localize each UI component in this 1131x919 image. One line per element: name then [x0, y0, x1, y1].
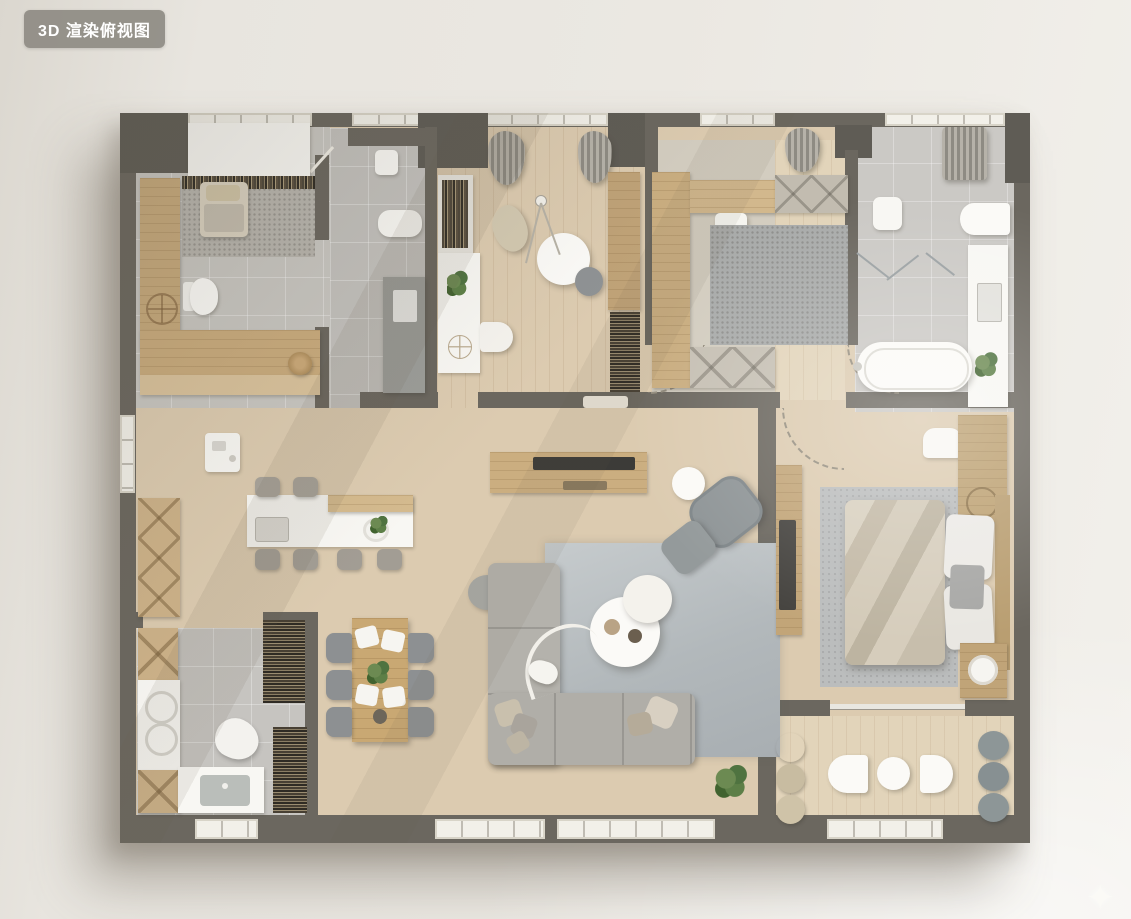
coffee-table-small	[623, 575, 672, 623]
nightstand-tray	[968, 655, 998, 685]
entry-cabinet-door	[393, 290, 417, 322]
bar-stool-5	[337, 549, 362, 570]
white-wardrobe	[188, 123, 310, 178]
bathtub-faucet	[853, 362, 862, 371]
wall-block-topleft	[120, 113, 188, 173]
dining-chair-l1	[326, 633, 352, 663]
place-setting-2	[380, 629, 406, 653]
entry-shoe-bench	[378, 210, 422, 237]
tv-console-groove	[563, 481, 607, 490]
place-setting-4	[382, 686, 407, 709]
dining-chair-r2	[408, 670, 434, 700]
living-plant	[715, 765, 751, 799]
island-sink	[255, 517, 289, 542]
entry-storage-cabinet	[383, 277, 425, 393]
place-setting-3	[354, 683, 379, 707]
laundry-basin-1	[145, 691, 178, 724]
office-rug	[710, 225, 848, 345]
laundry-exterior-door	[195, 819, 258, 839]
room1-compass-motif	[146, 293, 178, 325]
bed-duvet	[845, 500, 945, 665]
dining-chair-r3	[408, 707, 434, 737]
laundry-faucet	[222, 783, 228, 789]
study-cabinet-books	[610, 312, 640, 392]
dining-bottle	[373, 709, 387, 724]
bar-stool-3	[255, 549, 280, 570]
study-shelf-books	[442, 180, 468, 248]
toilet-bowl	[190, 278, 218, 315]
balcony-pouf-beige-2	[776, 764, 805, 793]
office-side-panel	[652, 172, 690, 388]
study-desk-decal	[448, 335, 472, 359]
window-bottom-living1	[435, 819, 545, 839]
bathroom-vanity	[968, 245, 1008, 407]
laundry-sink	[200, 775, 250, 806]
entry-door-mat	[375, 150, 398, 175]
coffee-table-bowl-1	[604, 619, 620, 635]
bedroom-basin	[923, 428, 962, 458]
bar-stool-4	[293, 549, 318, 570]
island-herbs	[370, 516, 390, 534]
bar-stool-6	[377, 549, 402, 570]
laundry-bookcase	[273, 727, 307, 813]
wall-bedroom-balcony-right	[965, 700, 1014, 716]
bathtub-inner	[864, 348, 969, 390]
study-side-chair	[575, 267, 603, 296]
tv	[533, 457, 635, 470]
window-top-office	[700, 113, 775, 126]
window-top-study	[485, 113, 608, 126]
wall-block-study-right	[608, 113, 650, 167]
bath-mat	[873, 197, 902, 230]
sparkle-icon: ✦	[1086, 878, 1115, 918]
living-bench	[583, 396, 628, 408]
kitchen-wall-cabinets	[138, 498, 180, 617]
dining-chair-l2	[326, 670, 352, 700]
laundry-cabinet-top	[138, 628, 178, 680]
bedroom-door-arc	[782, 408, 844, 470]
wall-entry-top	[348, 128, 425, 146]
bedroom-tv	[779, 520, 796, 610]
bathroom-plant	[975, 352, 1000, 378]
bedroom-nightstand	[960, 643, 1007, 698]
balcony-seat-left	[828, 755, 868, 793]
wall-bedroom-balcony-left	[776, 700, 830, 716]
window-bottom-balcony	[827, 819, 943, 839]
balcony-table	[877, 757, 910, 790]
coffee-machine-knob	[229, 455, 236, 462]
laundry-sink-counter	[178, 767, 264, 813]
window-left-kitchen	[120, 415, 135, 493]
balcony-pouf-gray-2	[978, 762, 1009, 791]
study-wood-cabinet	[608, 172, 640, 310]
coffee-machine-detail	[212, 441, 226, 451]
wall-entry-bottom-pier	[360, 392, 438, 408]
coffee-machine	[205, 433, 240, 472]
balcony-pouf-beige-3	[776, 795, 805, 824]
study-desk-plant	[447, 270, 469, 298]
laundry-cabinet-bottom	[138, 770, 180, 813]
office-upper-cabinets	[775, 175, 848, 213]
bathroom-toilet	[960, 203, 1010, 235]
bathtub	[857, 342, 972, 392]
wall-block-topright	[1005, 113, 1030, 183]
dining-chair-l3	[326, 707, 352, 737]
laundry-basin-2	[145, 723, 178, 756]
daybed-pillow	[206, 185, 240, 201]
office-lower-cabinets	[690, 347, 775, 388]
view-label-badge: 3D 渲染俯视图	[24, 10, 165, 48]
daybed-blanket	[204, 204, 244, 232]
dining-chair-r1	[408, 633, 434, 663]
bar-stool-2	[293, 477, 318, 497]
study-shelf	[438, 175, 473, 253]
balcony-pouf-gray-1	[978, 731, 1009, 760]
wood-stool	[288, 352, 312, 375]
window-top-entry	[352, 113, 425, 126]
balcony-pouf-beige-1	[776, 733, 805, 762]
room1-toilet	[183, 278, 218, 315]
window-top-bathroom	[885, 113, 1005, 126]
bed-throw-pillow	[949, 564, 985, 609]
balcony-pouf-gray-3	[978, 793, 1009, 822]
island-wood-section	[328, 495, 413, 512]
vanity-sink	[977, 283, 1002, 322]
window-bottom-living2	[557, 819, 715, 839]
coffee-table-bowl-2	[628, 629, 642, 643]
balcony-glass-door	[830, 704, 965, 709]
wall-entry-study	[425, 127, 437, 408]
office-desk	[690, 180, 775, 213]
wall-mid-left	[478, 392, 780, 408]
outer-wall-right	[1014, 113, 1030, 843]
daybed	[200, 182, 248, 237]
laundry-shelf	[263, 620, 305, 703]
study-desk-chair	[480, 322, 513, 352]
screenshot-root: { "viewer": { "badge_label": "3D 渲染俯视图",…	[0, 0, 1131, 919]
shower-curtain	[942, 127, 987, 180]
bar-stool-1	[255, 477, 280, 497]
dining-centerpiece	[367, 661, 392, 685]
floorplan-render	[120, 113, 1030, 843]
room1-counter-shelf	[140, 375, 320, 395]
